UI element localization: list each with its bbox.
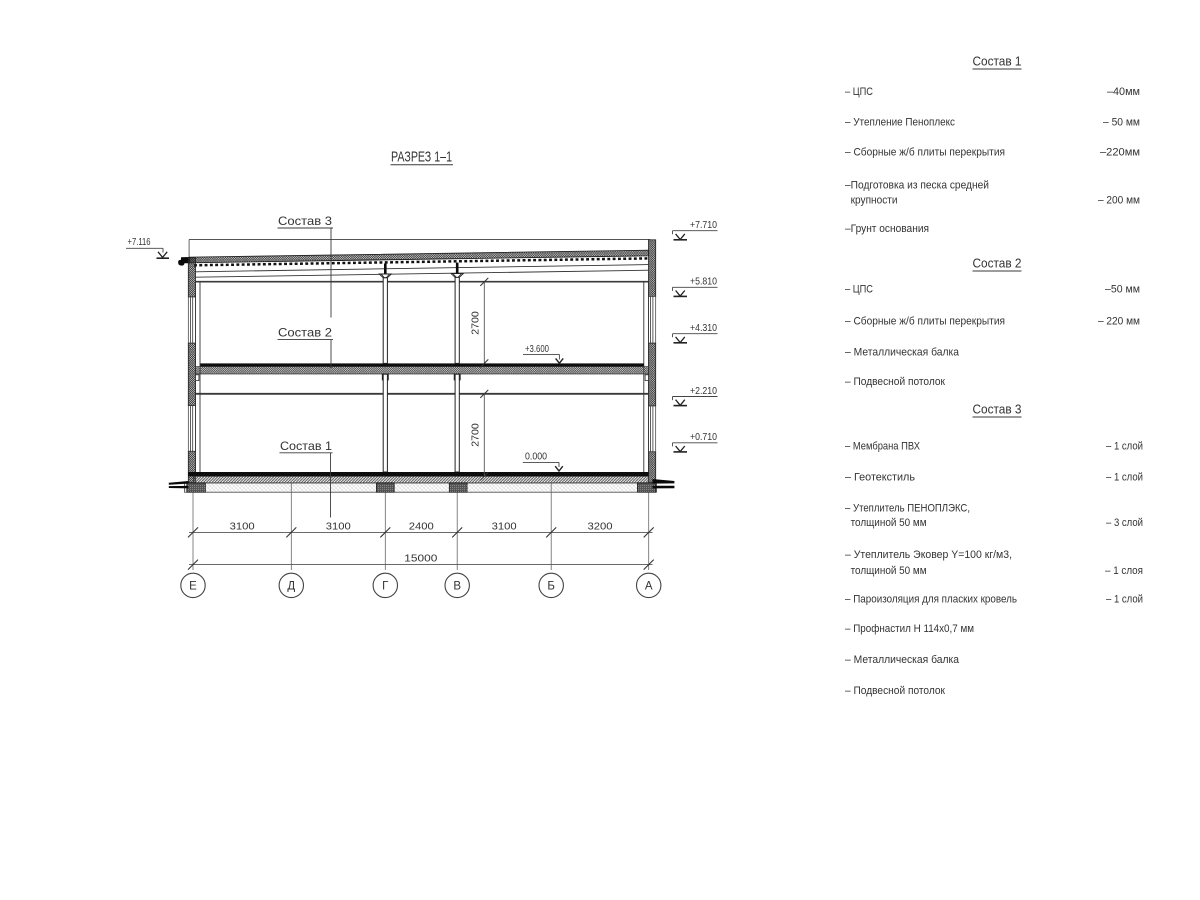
svg-text:– 1 слой: – 1 слой xyxy=(1106,594,1143,606)
svg-text:+0.710: +0.710 xyxy=(690,431,717,443)
svg-text:– Металлическая балка: – Металлическая балка xyxy=(845,654,960,666)
svg-text:толщиной 50 мм: толщиной 50 мм xyxy=(851,517,927,529)
svg-text:Состав 1: Состав 1 xyxy=(280,439,332,453)
svg-text:– Металлическая балка: – Металлическая балка xyxy=(845,347,960,359)
svg-text:крупности: крупности xyxy=(851,194,898,206)
svg-text:–50 мм: –50 мм xyxy=(1105,284,1140,296)
svg-text:Состав 1: Состав 1 xyxy=(973,54,1022,69)
svg-text:2400: 2400 xyxy=(409,520,434,532)
svg-text:Состав 3: Состав 3 xyxy=(278,214,332,228)
svg-text:– Пароизоляция для пласких кро: – Пароизоляция для пласких кровель xyxy=(845,594,1017,606)
svg-text:+3.600: +3.600 xyxy=(525,343,549,355)
svg-text:– Подвесной потолок: – Подвесной потолок xyxy=(845,685,945,697)
svg-text:– 220 мм: – 220 мм xyxy=(1098,316,1140,328)
svg-text:– Сборные ж/б плиты перекрытия: – Сборные ж/б плиты перекрытия xyxy=(845,316,1005,328)
svg-text:В: В xyxy=(453,581,461,593)
svg-text:2700: 2700 xyxy=(470,423,482,447)
svg-text:толщиной 50 мм: толщиной 50 мм xyxy=(851,565,927,577)
svg-text:+4.310: +4.310 xyxy=(690,322,717,334)
svg-text:– Утепление Пеноплекс: – Утепление Пеноплекс xyxy=(845,116,955,128)
svg-text:+7.116: +7.116 xyxy=(128,236,151,248)
svg-text:Б: Б xyxy=(547,581,555,593)
svg-text:+7.710: +7.710 xyxy=(690,219,717,231)
svg-text:3100: 3100 xyxy=(492,520,517,532)
svg-text:0.000: 0.000 xyxy=(525,451,547,463)
svg-text:–Подготовка из песка средней: –Подготовка из песка средней xyxy=(845,179,989,191)
svg-text:– 200 мм: – 200 мм xyxy=(1098,194,1140,206)
svg-text:15000: 15000 xyxy=(404,552,437,564)
svg-text:– 50 мм: – 50 мм xyxy=(1103,116,1140,128)
svg-text:Состав 2: Состав 2 xyxy=(973,256,1022,271)
svg-text:– Подвесной потолок: – Подвесной потолок xyxy=(845,376,945,388)
svg-text:– Геотекстиль: – Геотекстиль xyxy=(845,472,915,484)
svg-text:+2.210: +2.210 xyxy=(690,385,717,397)
svg-text:3200: 3200 xyxy=(588,520,613,532)
svg-text:Состав 3: Состав 3 xyxy=(973,402,1022,417)
svg-text:– Сборные ж/б плиты перекрытия: – Сборные ж/б плиты перекрытия xyxy=(845,147,1005,159)
svg-text:– 1 слой: – 1 слой xyxy=(1106,472,1143,484)
svg-text:– ЦПС: – ЦПС xyxy=(845,284,873,296)
svg-text:3100: 3100 xyxy=(326,520,351,532)
svg-text:Состав 2: Состав 2 xyxy=(278,326,332,340)
svg-text:Г: Г xyxy=(382,581,389,593)
svg-text:– ЦПС: – ЦПС xyxy=(845,86,873,98)
svg-text:+5.810: +5.810 xyxy=(690,276,717,288)
svg-text:–40мм: –40мм xyxy=(1107,86,1140,98)
svg-text:Д: Д xyxy=(287,581,295,593)
svg-text:– Мембрана ПВХ: – Мембрана ПВХ xyxy=(845,441,920,453)
svg-text:–Грунт основания: –Грунт основания xyxy=(845,223,929,235)
svg-text:– 1 слоя: – 1 слоя xyxy=(1105,565,1143,577)
svg-text:– Утеплитель Эковер Y=100 кг/м: – Утеплитель Эковер Y=100 кг/м3, xyxy=(845,549,1012,561)
svg-text:– Профнастил Н 114х0,7 мм: – Профнастил Н 114х0,7 мм xyxy=(845,623,974,635)
svg-text:Е: Е xyxy=(189,581,197,593)
svg-text:3100: 3100 xyxy=(230,520,255,532)
svg-text:– 1 слой: – 1 слой xyxy=(1106,441,1143,453)
svg-text:– Утеплитель ПЕНОПЛЭКС,: – Утеплитель ПЕНОПЛЭКС, xyxy=(845,503,970,515)
svg-text:2700: 2700 xyxy=(470,311,482,335)
svg-text:– 3 слой: – 3 слой xyxy=(1106,517,1143,529)
svg-text:–220мм: –220мм xyxy=(1100,147,1140,159)
svg-text:А: А xyxy=(645,581,653,593)
svg-text:РАЗРЕЗ 1–1: РАЗРЕЗ 1–1 xyxy=(391,149,452,166)
